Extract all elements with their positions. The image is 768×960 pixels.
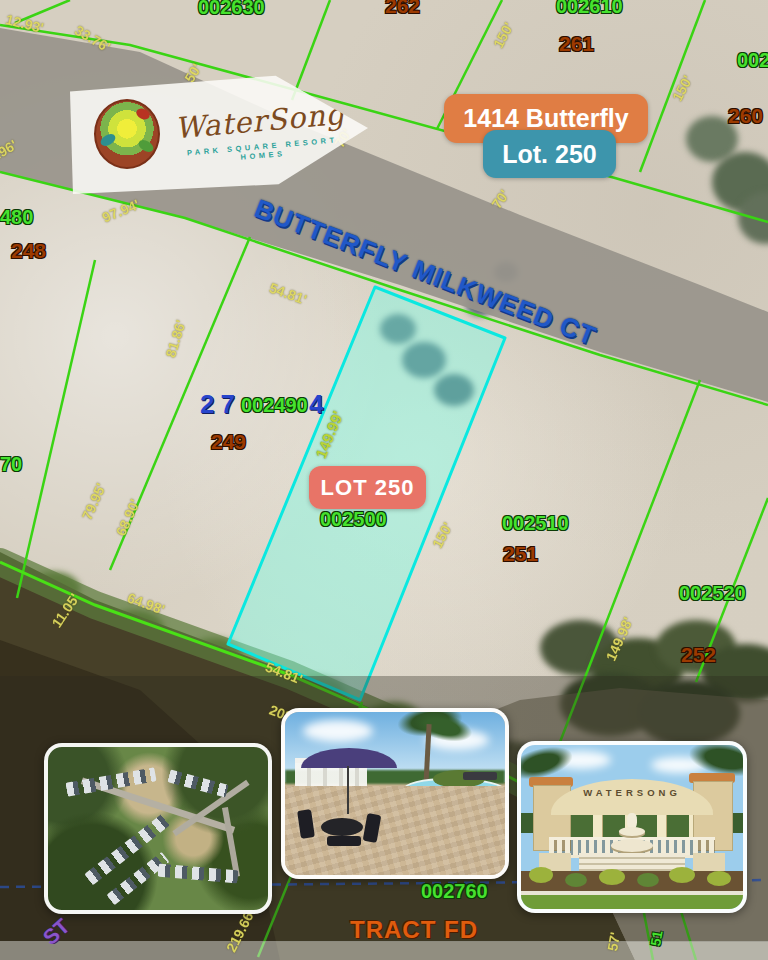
shrub [637, 873, 659, 887]
lot-number-248: 248 [11, 240, 46, 261]
planter-wall [693, 853, 725, 873]
entry-steps [579, 853, 685, 873]
parcel-id-002520: 002520 [679, 583, 746, 603]
parcel-id-002760: 002760 [421, 881, 488, 901]
lot-number-262: 262 [385, 0, 420, 16]
parcel-id-partial-480: 480 [0, 207, 33, 227]
dim-97-94: 97.94' [100, 197, 141, 224]
dim-150-a: 150' [491, 20, 516, 50]
photo-pool-amenity [281, 708, 509, 879]
parcel-id-002500: 002500 [320, 509, 387, 529]
dim-79-95: 79.95' [80, 481, 108, 522]
dim-96-partial: .96' [0, 138, 19, 162]
shrub [529, 867, 553, 883]
shore-bush [186, 638, 242, 674]
lot-number-261: 261 [559, 33, 594, 54]
parcel-partial-51: 51 [648, 929, 664, 947]
tract-label: TRACT FD [350, 918, 478, 942]
dim-12-93: 12.93' [4, 12, 45, 35]
parcel-line [292, 0, 330, 100]
dim-150-c: 150' [430, 520, 455, 550]
aerial-house-row [158, 864, 239, 884]
parcel-line [17, 260, 95, 598]
debris-patch [434, 374, 474, 406]
aerial-house-row [167, 769, 228, 797]
photo-aerial-community [44, 743, 272, 914]
watersong-logo-banner: WaterSong PARK SQUARE RESORT HOMES [70, 72, 368, 194]
grass-strip [521, 895, 743, 909]
shrub [599, 869, 625, 885]
fountain-mid-tier [619, 827, 645, 836]
umbrella-pole [347, 766, 349, 814]
pool-deck [285, 786, 505, 875]
cloud [303, 720, 373, 742]
dim-81-86: 81.86' [163, 318, 188, 359]
entrance-sign-frieze: WATERSONG [551, 779, 713, 815]
logo-text: WaterSong PARK SQUARE RESORT HOMES [164, 96, 358, 168]
watersong-flower-icon [94, 99, 160, 169]
photo-entrance-monument: WATERSONG [517, 741, 747, 913]
lot-250-marker: LOT 250 [309, 466, 426, 509]
lot-number-260: 260 [728, 105, 763, 126]
petal-green [137, 138, 156, 155]
dim-150-b: 150' [670, 73, 695, 103]
parcel-id-partial-right: 002 [737, 50, 768, 70]
patio-chair [327, 836, 361, 846]
lot-number-252: 252 [681, 644, 716, 665]
entrance-sign-text: WATERSONG [583, 787, 681, 798]
lot-badge: Lot. 250 [483, 130, 616, 178]
parcel-id-002630: 002630 [198, 0, 265, 17]
parcel-id-002510: 002510 [502, 513, 569, 533]
lounge-chairs [463, 772, 497, 780]
shrub [565, 873, 587, 887]
lot-number-251: 251 [503, 543, 538, 564]
overlap-blue-4: 4 [309, 391, 329, 417]
debris-patch [402, 342, 446, 378]
shrub [669, 867, 695, 883]
aerial-road [222, 807, 240, 877]
petal-teal [99, 132, 118, 149]
dim-54-81-top: 54.81' [268, 280, 309, 306]
dim-70-b: 70' [489, 187, 511, 211]
shrub [707, 871, 731, 886]
dim-57-partial: 57' [605, 931, 622, 952]
parcel-id-partial-70: 70 [0, 454, 22, 474]
overlap-blue-27: 27 [200, 391, 241, 417]
parcel-id-002610: 002610 [556, 0, 623, 16]
street-name-label: BUTTERFLY MILKWEED CT [251, 195, 600, 349]
patio-table [321, 818, 363, 836]
lot-number-249: 249 [211, 431, 246, 452]
dim-68-90: 68.90' [114, 497, 142, 538]
debris-patch [494, 262, 518, 282]
debris-patch [380, 314, 416, 344]
petal-red [135, 107, 152, 122]
parcel-id-002490: 002490 [241, 395, 308, 415]
dim-33-76: 33.76' [73, 23, 113, 54]
fountain-basin [611, 839, 653, 852]
dim-50: 50' [182, 61, 204, 84]
flyer-canvas: 0026302620026102610022604802487027002490… [0, 0, 768, 960]
